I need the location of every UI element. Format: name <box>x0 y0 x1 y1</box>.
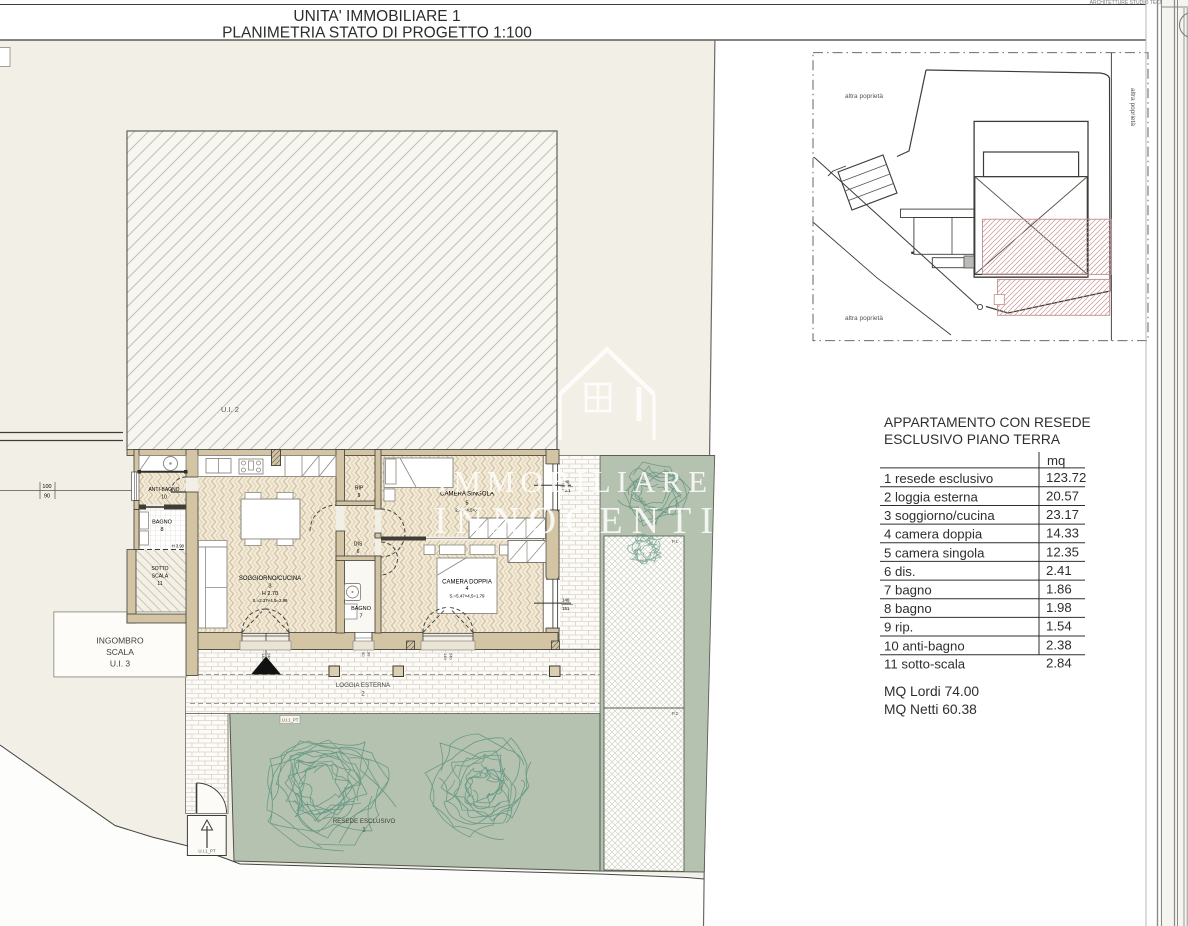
svg-text:1.98: 1.98 <box>1046 600 1072 615</box>
svg-text:123.72: 123.72 <box>1046 470 1086 485</box>
svg-text:7 bagno: 7 bagno <box>884 583 932 598</box>
svg-text:7: 7 <box>359 614 362 620</box>
svg-text:11 sotto-scala: 11 sotto-scala <box>884 657 966 672</box>
svg-text:SOTTO: SOTTO <box>151 566 168 572</box>
svg-text:LOGGIA ESTERNA: LOGGIA ESTERNA <box>336 682 391 689</box>
svg-text:BAGNO: BAGNO <box>351 606 372 612</box>
svg-text:11: 11 <box>157 581 162 587</box>
svg-text:U.I.1_PT: U.I.1_PT <box>282 718 299 723</box>
svg-text:1: 1 <box>362 827 366 834</box>
svg-text:CAMERA DOPPIA: CAMERA DOPPIA <box>442 580 492 586</box>
svg-text:6: 6 <box>357 549 360 555</box>
svg-text:MQ Lordi 74.00: MQ Lordi 74.00 <box>884 684 979 699</box>
svg-text:151: 151 <box>562 606 570 611</box>
svg-text:BAGNO: BAGNO <box>152 520 173 526</box>
svg-text:altra poprietà: altra poprietà <box>845 315 883 322</box>
svg-text:S.=5.47×4,5=1.79: S.=5.47×4,5=1.79 <box>449 594 485 599</box>
svg-text:ANTI-BAGNO: ANTI-BAGNO <box>148 487 179 493</box>
svg-text:3 soggiorno/cucina: 3 soggiorno/cucina <box>884 508 995 523</box>
svg-text:H 3.90: H 3.90 <box>172 544 185 549</box>
svg-text:H 2.70: H 2.70 <box>262 591 278 597</box>
svg-text:INNOCENTI: INNOCENTI <box>434 500 722 542</box>
svg-text:90: 90 <box>361 652 366 657</box>
svg-text:6 dis.: 6 dis. <box>884 564 916 579</box>
svg-text:UNITA' IMMOBILIARE 1: UNITA' IMMOBILIARE 1 <box>293 8 460 25</box>
svg-text:2.41: 2.41 <box>1046 563 1072 578</box>
svg-text:140: 140 <box>562 598 570 603</box>
svg-text:1.86: 1.86 <box>1046 582 1072 597</box>
svg-text:1.54: 1.54 <box>1046 619 1072 634</box>
svg-text:9: 9 <box>358 493 361 499</box>
svg-text:SCALA: SCALA <box>106 647 134 657</box>
svg-text:altra poprietà: altra poprietà <box>845 93 883 100</box>
svg-text:S.=3.37×4,5=2.89: S.=3.37×4,5=2.89 <box>252 598 288 603</box>
svg-text:3: 3 <box>268 584 271 590</box>
svg-text:8: 8 <box>160 527 163 533</box>
svg-text:12.35: 12.35 <box>1046 545 1079 560</box>
svg-text:RIP: RIP <box>355 486 364 492</box>
svg-text:INGOMBRO: INGOMBRO <box>96 636 144 646</box>
svg-text:U.I.1_PT: U.I.1_PT <box>198 849 216 854</box>
svg-text:5 camera singola: 5 camera singola <box>884 546 985 561</box>
svg-text:98: 98 <box>367 652 372 657</box>
svg-text:2.84: 2.84 <box>1046 656 1072 671</box>
svg-text:DIS: DIS <box>354 542 363 548</box>
svg-text:1 resede esclusivo: 1 resede esclusivo <box>884 471 993 486</box>
svg-text:P.2: P.2 <box>672 711 679 716</box>
svg-text:MQ Netti 60.38: MQ Netti 60.38 <box>884 702 977 717</box>
svg-text:14.33: 14.33 <box>1046 526 1079 541</box>
svg-text:SOGGIORNO/CUCINA: SOGGIORNO/CUCINA <box>239 576 301 582</box>
svg-text:mq: mq <box>1047 453 1065 468</box>
svg-text:IMMOBILIARE: IMMOBILIARE <box>437 464 713 499</box>
svg-text:100: 100 <box>42 484 51 490</box>
svg-text:ARCHITETTURE STUDIO TECNICO: ARCHITETTURE STUDIO TECNICO <box>1090 0 1173 6</box>
svg-text:2: 2 <box>361 691 365 698</box>
svg-text:240: 240 <box>267 653 272 660</box>
svg-text:altra poprietà: altra poprietà <box>1129 88 1136 126</box>
svg-text:90: 90 <box>44 494 50 500</box>
svg-text:10: 10 <box>161 495 167 501</box>
svg-text:140: 140 <box>261 653 266 660</box>
svg-text:140: 140 <box>443 653 448 660</box>
svg-text:4 camera doppia: 4 camera doppia <box>884 527 983 542</box>
svg-text:U.I. 3: U.I. 3 <box>110 659 131 669</box>
svg-text:20.57: 20.57 <box>1046 489 1079 504</box>
svg-text:RESEDE ESCLUSIVO: RESEDE ESCLUSIVO <box>333 818 396 825</box>
svg-text:240: 240 <box>449 653 454 660</box>
svg-text:9 rip.: 9 rip. <box>884 620 913 635</box>
svg-text:8 bagno: 8 bagno <box>884 601 932 616</box>
svg-text:2.38: 2.38 <box>1046 638 1072 653</box>
svg-text:U.I. 2: U.I. 2 <box>221 405 239 414</box>
svg-text:PLANIMETRIA STATO DI PROGETTO: PLANIMETRIA STATO DI PROGETTO 1:100 <box>222 25 532 42</box>
svg-text:APPARTAMENTO CON RESEDE: APPARTAMENTO CON RESEDE <box>884 415 1091 430</box>
svg-text:SCALA: SCALA <box>152 574 169 580</box>
svg-text:ESCLUSIVO PIANO TERRA: ESCLUSIVO PIANO TERRA <box>884 432 1061 447</box>
svg-text:2 loggia esterna: 2 loggia esterna <box>884 490 979 505</box>
svg-text:23.17: 23.17 <box>1046 507 1079 522</box>
svg-text:10 anti-bagno: 10 anti-bagno <box>884 639 965 654</box>
svg-text:4: 4 <box>465 586 468 592</box>
